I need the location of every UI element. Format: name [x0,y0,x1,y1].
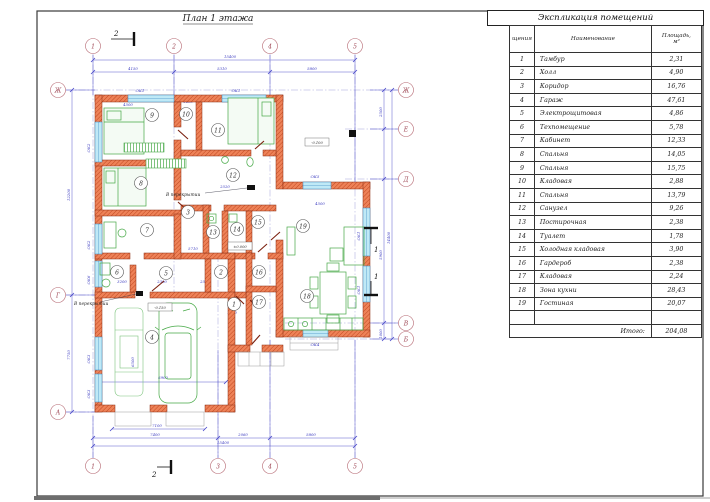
table-row: 10Кладовая2,88 [510,175,702,189]
window-label-ok1-right-b: ОК1 [356,286,361,295]
axis-right-e: Е [403,127,409,134]
radiator-1 [124,143,164,152]
room-5: 5 [164,271,168,278]
radiator-2 [146,159,186,168]
table-row: 2Холл4,90 [510,66,702,80]
drawing-sheet: План 1 этажа 15400 4150 5310 5800 7100 7… [0,0,710,502]
total-label: Итого: [510,324,652,338]
axis-top-4: 4 [267,44,272,51]
table-row: 12Санузел9,26 [510,202,702,216]
dim-right-1: 2500 [378,107,383,118]
room-3: 3 [186,210,190,217]
toilet-room12 [247,158,253,167]
dim-in-1: 4500 [122,102,133,107]
table-row: 17Кладовая2,24 [510,270,702,284]
dim-in-4: 2520 [219,184,230,189]
ceiling-label-1: В перекрытии [165,193,200,198]
bottom-edge-dark [34,496,380,500]
table-header-row: щения Наименование Площадь, м² [510,26,702,53]
section-2-top: 2 [113,30,119,38]
room-18: 18 [303,294,311,301]
dim-in-6: 3200 [117,279,127,284]
dining-table [310,263,356,323]
dim-garage-doors: 7100 [152,423,162,428]
axis-bottom-4: 4 [267,464,272,471]
car-left [115,308,143,396]
dim-right-total: 14400 [386,231,391,244]
fixture-room14 [229,214,237,222]
axis-bottom-5: 5 [353,464,357,471]
table-total-row: Итого: 204,08 [510,324,702,338]
axis-bottom-1: 1 [91,464,95,471]
room-6: 6 [115,270,119,277]
axis-bottom-3: 3 [216,464,220,471]
window-label-ok1-top-right: ОК1 [232,88,241,93]
room-16: 16 [255,270,263,277]
explication-table: щения Наименование Площадь, м² 1Тамбур2,… [509,25,702,338]
kitchen-counter [284,318,363,330]
dim-top-2: 5310 [217,66,227,71]
table-row: 4Гараж47,61 [510,93,702,107]
car-right [155,303,201,403]
dim-in-10: 6500 [130,357,135,367]
table-row: 11Спальня13,79 [510,188,702,202]
dim-bot-2: 2060 [237,432,248,437]
table-row: 9Спальня15,75 [510,161,702,175]
col-header-room-number: щения [510,26,535,53]
dim-top-1: 4150 [127,66,138,71]
section-2-bottom: 2 [151,471,157,479]
axis-left-a: А [55,410,61,417]
chair-room7 [118,229,126,237]
table-row: 5Электрощитовая4,86 [510,107,702,121]
plan-title: План 1 этажа [182,14,254,24]
total-value: 204,08 [651,324,701,338]
axis-right-b: Б [403,337,409,344]
room-2: 2 [218,270,223,277]
table-row: 1Тамбур2,31 [510,53,702,67]
section-1-a: 1 [374,246,378,254]
dim-right-3: 1000 [378,329,383,339]
axis-top-1: 1 [91,44,95,51]
table-row: 8Спальня14,05 [510,148,702,162]
table-row: 7Кабинет12,33 [510,134,702,148]
dim-in-9: 6900 [158,375,168,380]
room-7: 7 [145,228,149,235]
level-garage: -0.150 [154,306,166,310]
col-header-area: Площадь, м² [651,26,701,53]
window-label-ok1-right-a: ОК1 [356,232,361,241]
room-8: 8 [139,181,143,188]
window-label-ok6: ОК6 [86,275,91,284]
window-label-ok2-a: ОК2 [86,143,91,152]
room-10: 10 [182,112,190,119]
table-row: 13Постирочная2,38 [510,216,702,230]
ceiling-label-2: В перекрытии [73,302,108,307]
table-row: 18Зона кухни28,43 [510,284,702,298]
table-row: 6Техпомещение5,78 [510,120,702,134]
room-13: 13 [209,230,217,237]
dim-in-5: 5710 [188,246,198,251]
axis-right-zh: Ж [402,88,410,95]
sink-room12 [222,157,229,164]
axis-right-d: Д [403,177,409,184]
dim-left-2: 7750 [66,350,71,360]
room-14: 14 [233,227,241,234]
room-9: 9 [150,113,154,120]
column-marker [349,130,356,137]
explication-title: Экспликация помещений [487,10,704,26]
window-label-ok3-a: ОК3 [86,354,91,363]
room-1: 1 [232,302,236,309]
dim-bot-1: 7400 [150,432,160,437]
axis-right-v: В [403,321,409,328]
dim-bot-3: 5800 [306,432,316,437]
dim-left-1: 12200 [66,188,71,201]
bed-room11 [228,98,274,144]
dim-right-2: 5900 [378,250,383,260]
sofa-room19 [344,227,364,265]
room-4: 4 [149,335,154,342]
table-row: 19Гостиная20,07 [510,297,702,311]
desk-room7 [104,222,116,248]
room-17: 17 [255,300,263,307]
bottom-edge-light [380,497,710,499]
dim-top-3: 5800 [307,66,317,71]
window-label-ok2-b: ОК2 [86,240,91,249]
window-label-ok1-top-left: ОК1 [136,88,145,93]
dim-bot-total: 15400 [217,440,230,445]
axis-left-zh: Ж [54,88,62,95]
window-label-ok5: ОК5 [311,174,320,179]
room-12: 12 [229,173,237,180]
table-row: 3Коридор16,76 [510,80,702,94]
room-15: 15 [254,220,262,227]
axis-top-2: 2 [171,44,176,51]
shelf-room19 [287,227,295,255]
dim-in-11: 4500 [314,201,325,206]
table-empty-row [510,311,702,325]
axis-top-5: 5 [353,44,357,51]
window-label-ok3-b: ОК3 [86,389,91,398]
room-19: 19 [299,224,307,231]
table-row: 15Холодная кладовая3,90 [510,243,702,257]
col-header-name: Наименование [534,26,651,53]
level-terrace: -0.100 [311,141,323,145]
level-zero: ±0.000 [233,245,247,249]
dim-top-total: 15400 [224,54,237,59]
room-11: 11 [214,128,222,135]
table-row: 16Гардероб2,38 [510,256,702,270]
table-row: 14Туалет1,78 [510,229,702,243]
section-1-b: 1 [374,273,378,281]
